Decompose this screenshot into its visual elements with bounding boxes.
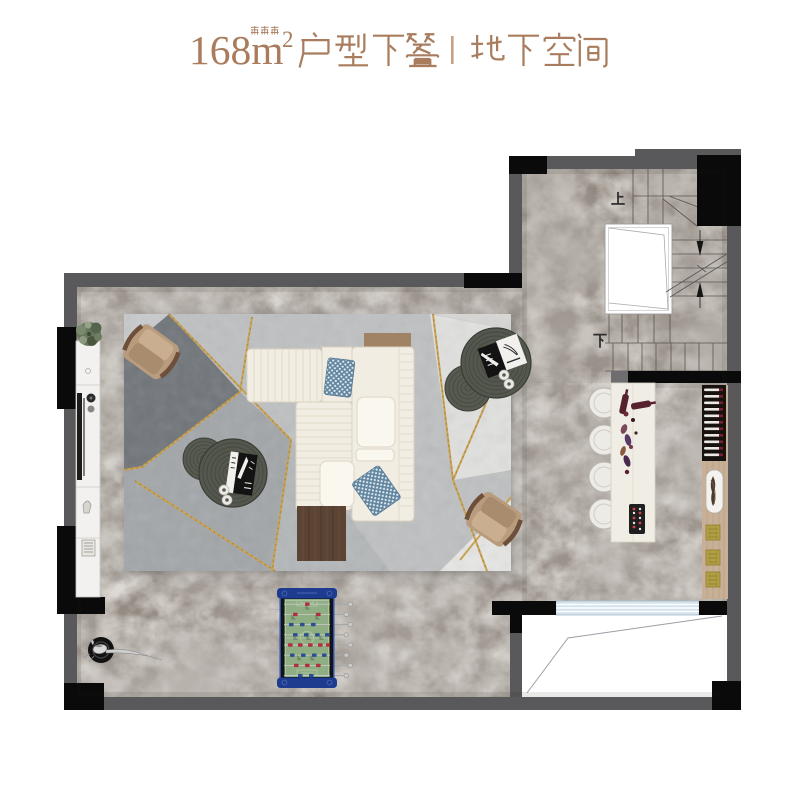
svg-text:168m: 168m [189, 27, 284, 73]
svg-text:2: 2 [282, 27, 294, 52]
